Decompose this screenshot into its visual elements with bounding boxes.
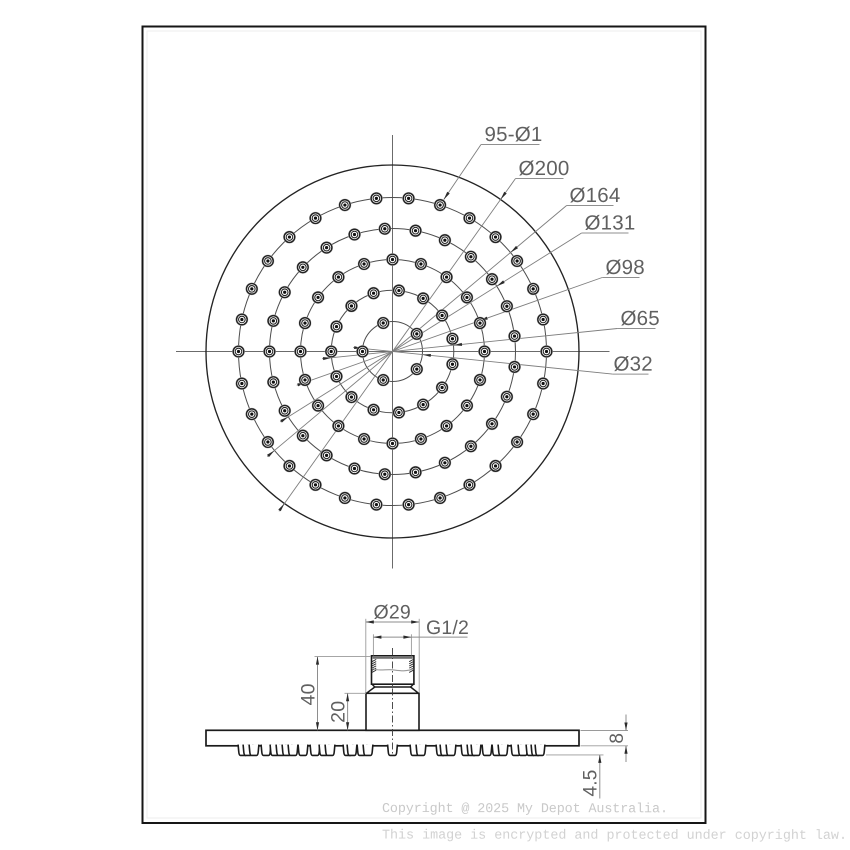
svg-text:Ø164: Ø164 xyxy=(569,184,620,207)
svg-text:Ø98: Ø98 xyxy=(605,256,644,279)
svg-text:Ø65: Ø65 xyxy=(620,307,659,330)
svg-text:Ø32: Ø32 xyxy=(613,353,652,376)
svg-text:20: 20 xyxy=(328,701,350,723)
svg-text:4.5: 4.5 xyxy=(581,769,602,796)
svg-text:Copyright @ 2025 My Depot Aust: Copyright @ 2025 My Depot Australia. xyxy=(382,802,668,817)
svg-text:8: 8 xyxy=(607,733,628,744)
svg-text:G1/2: G1/2 xyxy=(426,617,469,639)
svg-text:Ø29: Ø29 xyxy=(373,602,410,624)
svg-text:Ø200: Ø200 xyxy=(518,157,569,180)
svg-text:40: 40 xyxy=(298,683,320,705)
svg-text:Ø131: Ø131 xyxy=(584,212,635,235)
svg-text:95-Ø1: 95-Ø1 xyxy=(484,123,542,146)
svg-text:This image is encrypted and pr: This image is encrypted and protected un… xyxy=(382,829,847,844)
